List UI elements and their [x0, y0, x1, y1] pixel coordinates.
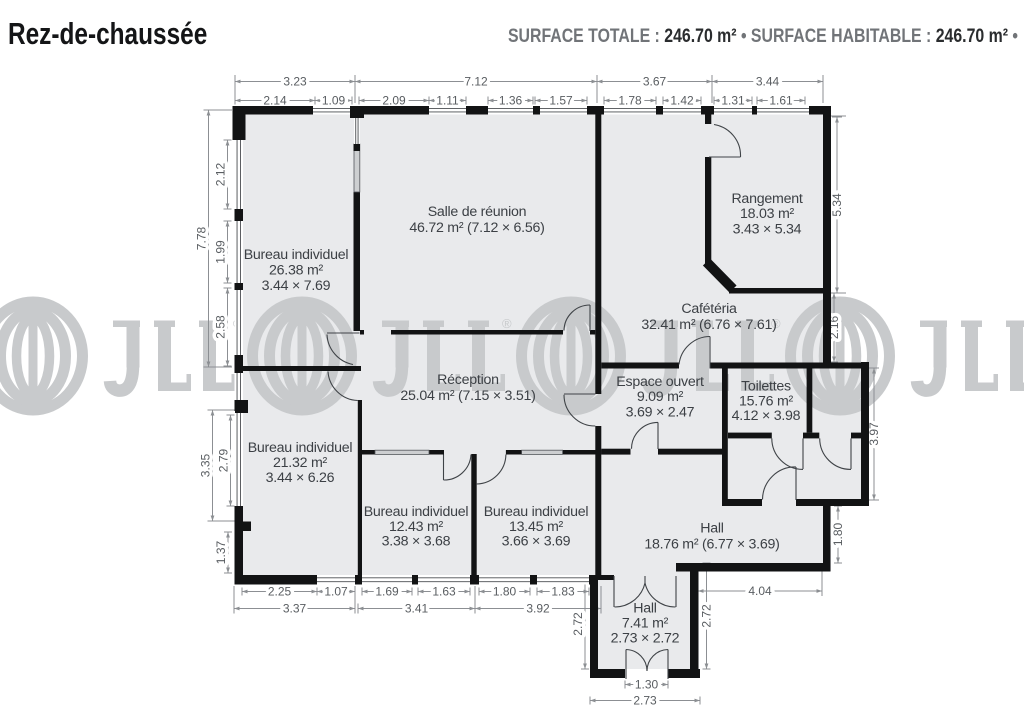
- svg-text:21.32 m²: 21.32 m²: [273, 455, 328, 471]
- svg-text:1.11: 1.11: [436, 94, 459, 108]
- svg-text:9.09 m²: 9.09 m²: [637, 389, 684, 405]
- svg-text:3.67: 3.67: [643, 75, 667, 89]
- svg-text:1.37: 1.37: [214, 540, 228, 564]
- svg-text:SURFACE TOTALE : 246.70 m² • S: SURFACE TOTALE : 246.70 m² • SURFACE HAB…: [508, 25, 1018, 47]
- svg-text:3.41: 3.41: [405, 602, 429, 616]
- svg-text:3.37: 3.37: [283, 602, 307, 616]
- svg-text:2.79: 2.79: [216, 448, 230, 472]
- svg-text:Rez-de-chaussée: Rez-de-chaussée: [8, 16, 207, 50]
- svg-text:1.30: 1.30: [635, 678, 659, 692]
- svg-text:Cafétéria: Cafétéria: [681, 301, 737, 317]
- svg-text:3.23: 3.23: [283, 75, 307, 89]
- svg-text:12.43 m²: 12.43 m²: [389, 519, 444, 535]
- svg-text:2.72: 2.72: [700, 604, 714, 628]
- svg-text:1.80: 1.80: [493, 585, 517, 599]
- svg-text:2.12: 2.12: [213, 162, 227, 186]
- svg-text:Hall: Hall: [633, 601, 657, 617]
- svg-text:4.12 × 3.98: 4.12 × 3.98: [732, 408, 801, 424]
- svg-text:1.99: 1.99: [213, 240, 227, 264]
- svg-text:2.58: 2.58: [213, 315, 227, 339]
- svg-text:7.41 m²: 7.41 m²: [622, 616, 669, 632]
- svg-text:1.69: 1.69: [375, 585, 399, 599]
- svg-text:1.07: 1.07: [324, 585, 348, 599]
- svg-text:Bureau individuel: Bureau individuel: [364, 504, 469, 520]
- svg-text:3.97: 3.97: [867, 422, 881, 446]
- svg-text:Rangement: Rangement: [731, 191, 802, 207]
- svg-text:3.43 × 5.34: 3.43 × 5.34: [733, 221, 802, 237]
- svg-text:26.38 m²: 26.38 m²: [269, 263, 324, 279]
- svg-text:7.12: 7.12: [464, 75, 488, 89]
- svg-text:1.42: 1.42: [670, 94, 694, 108]
- svg-text:7.78: 7.78: [194, 226, 208, 250]
- svg-text:Bureau individuel: Bureau individuel: [484, 504, 589, 520]
- svg-text:2.73 × 2.72: 2.73 × 2.72: [611, 631, 680, 647]
- svg-text:1.61: 1.61: [769, 94, 793, 108]
- svg-text:25.04 m² (7.15 × 3.51): 25.04 m² (7.15 × 3.51): [400, 388, 535, 404]
- svg-text:2.72: 2.72: [571, 612, 585, 636]
- svg-text:2.73: 2.73: [633, 694, 657, 708]
- svg-text:4.04: 4.04: [748, 584, 772, 598]
- svg-text:2.14: 2.14: [263, 94, 287, 108]
- svg-text:18.03 m²: 18.03 m²: [740, 206, 795, 222]
- svg-text:3.66 × 3.69: 3.66 × 3.69: [502, 534, 571, 550]
- svg-text:18.76 m² (6.77 × 3.69): 18.76 m² (6.77 × 3.69): [644, 537, 779, 553]
- svg-text:3.44 × 7.69: 3.44 × 7.69: [262, 278, 331, 294]
- svg-text:®: ®: [502, 316, 512, 331]
- svg-text:1.78: 1.78: [618, 94, 642, 108]
- svg-text:1.63: 1.63: [432, 585, 456, 599]
- svg-text:1.57: 1.57: [549, 94, 573, 108]
- svg-text:15.76 m²: 15.76 m²: [739, 393, 794, 409]
- svg-text:3.35: 3.35: [198, 453, 212, 477]
- svg-text:1.80: 1.80: [831, 522, 845, 546]
- svg-text:Salle de réunion: Salle de réunion: [428, 204, 527, 220]
- svg-text:3.44: 3.44: [756, 75, 780, 89]
- svg-text:1.09: 1.09: [322, 94, 346, 108]
- svg-text:2.09: 2.09: [382, 94, 406, 108]
- svg-text:3.38 × 3.68: 3.38 × 3.68: [382, 534, 451, 550]
- svg-text:1.36: 1.36: [499, 94, 523, 108]
- svg-text:2.25: 2.25: [268, 585, 292, 599]
- svg-text:46.72 m² (7.12 × 6.56): 46.72 m² (7.12 × 6.56): [409, 220, 544, 236]
- svg-text:Hall: Hall: [700, 521, 724, 537]
- svg-text:3.92: 3.92: [526, 602, 550, 616]
- svg-text:13.45 m²: 13.45 m²: [509, 519, 564, 535]
- svg-text:Bureau individuel: Bureau individuel: [248, 440, 353, 456]
- svg-text:3.44 × 6.26: 3.44 × 6.26: [266, 470, 335, 486]
- svg-text:Toilettes: Toilettes: [741, 379, 791, 395]
- svg-text:Réception: Réception: [437, 372, 499, 388]
- svg-text:32.41 m² (6.76 × 7.61): 32.41 m² (6.76 × 7.61): [641, 317, 776, 333]
- svg-text:1.31: 1.31: [721, 94, 745, 108]
- svg-text:3.69 × 2.47: 3.69 × 2.47: [626, 404, 695, 420]
- svg-text:1.83: 1.83: [551, 585, 575, 599]
- svg-text:Espace ouvert: Espace ouvert: [616, 374, 704, 390]
- svg-text:5.34: 5.34: [830, 193, 844, 217]
- svg-text:Bureau individuel: Bureau individuel: [244, 247, 349, 263]
